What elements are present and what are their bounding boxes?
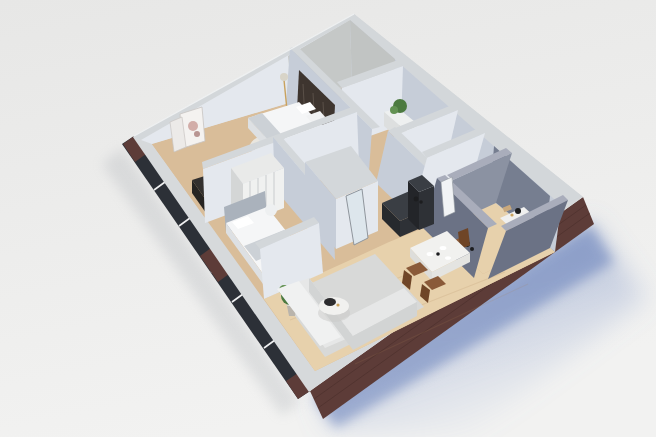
floor-decor <box>470 247 474 251</box>
decor-gold <box>510 213 513 216</box>
floorplan-render <box>0 0 656 437</box>
art-paint <box>188 121 198 131</box>
plate <box>440 246 447 250</box>
decor-gold <box>336 303 339 306</box>
plate <box>445 256 451 260</box>
tall-unit-face <box>419 186 434 230</box>
art-paint <box>194 131 200 137</box>
lamp-shade <box>280 73 288 81</box>
pouf <box>265 204 277 216</box>
bottle-icon <box>414 197 419 202</box>
plant-icon <box>390 106 398 114</box>
floorplan-svg <box>0 0 656 437</box>
bottle-icon <box>436 252 440 256</box>
bottle-icon <box>419 200 423 204</box>
plate <box>427 252 434 256</box>
bag-icon <box>515 208 521 214</box>
round-tray <box>324 298 336 306</box>
